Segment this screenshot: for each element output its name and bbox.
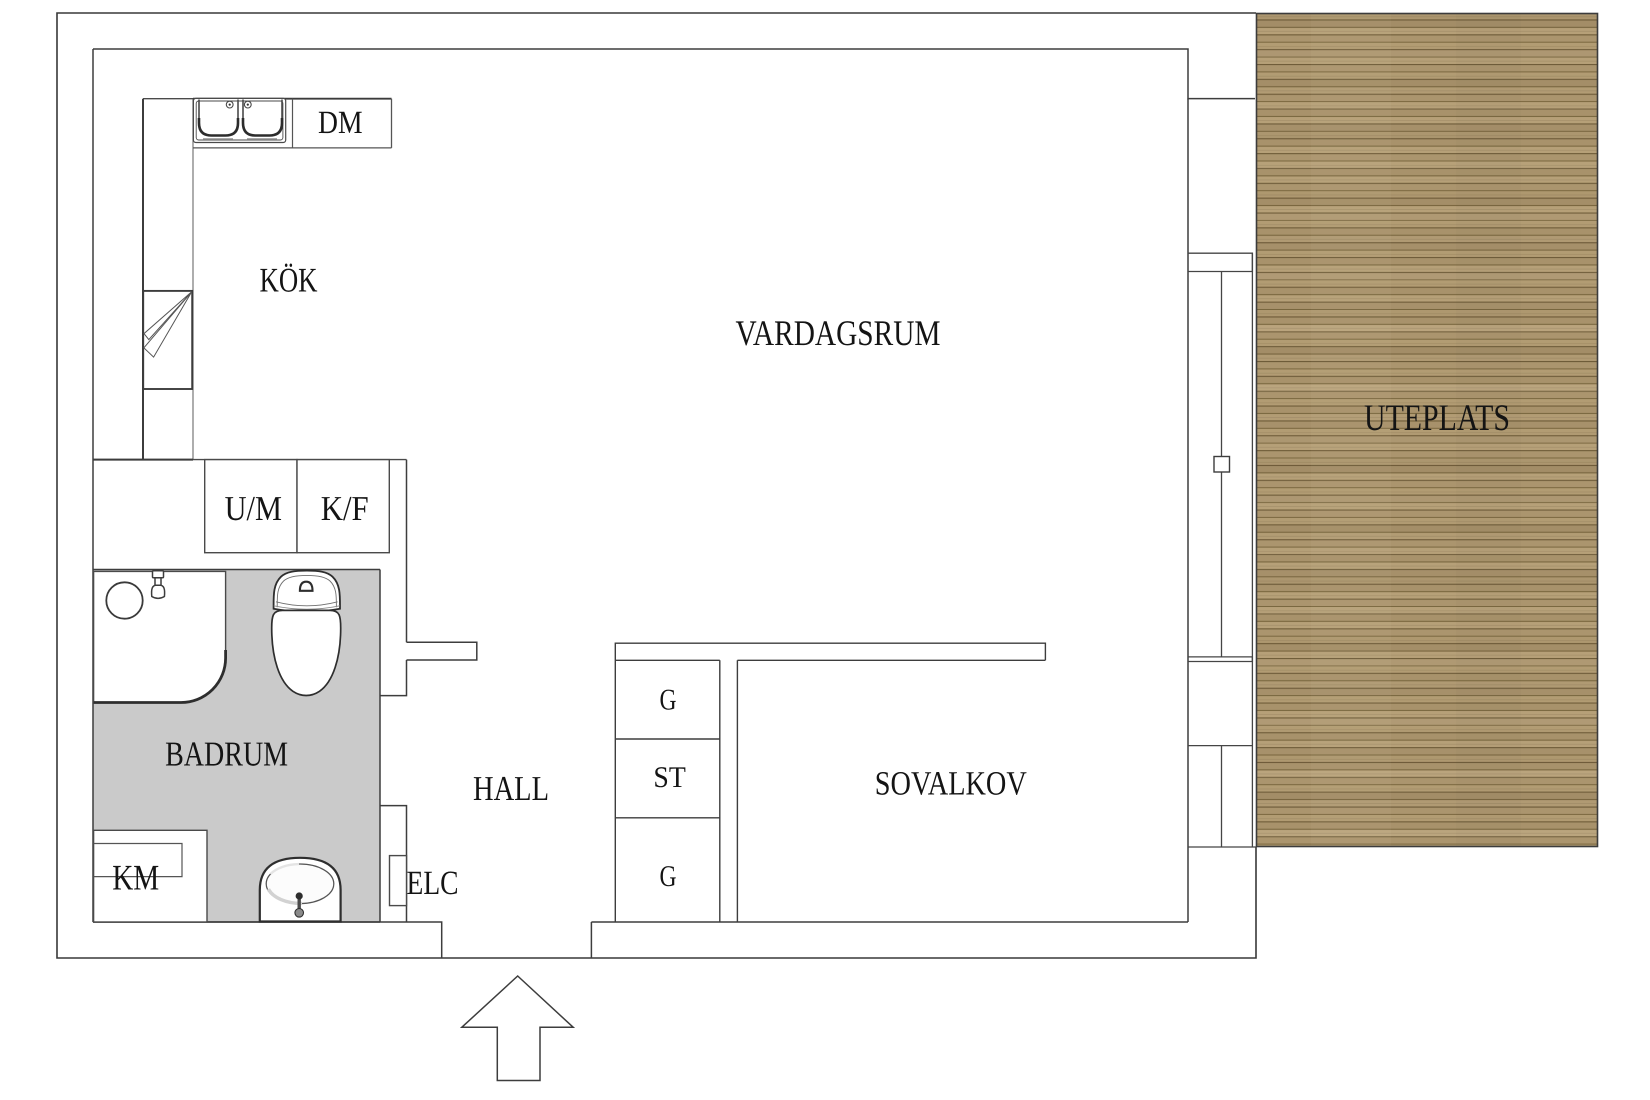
svg-text:VARDAGSRUM: VARDAGSRUM — [736, 313, 941, 353]
svg-text:ST: ST — [653, 761, 685, 794]
svg-text:KÖK: KÖK — [260, 261, 318, 299]
svg-text:U/M: U/M — [225, 489, 282, 528]
svg-text:G: G — [660, 860, 677, 893]
svg-text:HALL: HALL — [473, 769, 549, 808]
svg-text:BADRUM: BADRUM — [165, 735, 288, 774]
svg-text:ELC: ELC — [407, 865, 459, 902]
svg-text:UTEPLATS: UTEPLATS — [1364, 398, 1510, 439]
svg-text:SOVALKOV: SOVALKOV — [875, 766, 1027, 803]
svg-text:G: G — [660, 684, 677, 717]
svg-text:DM: DM — [318, 105, 363, 141]
svg-text:K/F: K/F — [321, 489, 369, 528]
svg-text:KM: KM — [112, 857, 159, 897]
